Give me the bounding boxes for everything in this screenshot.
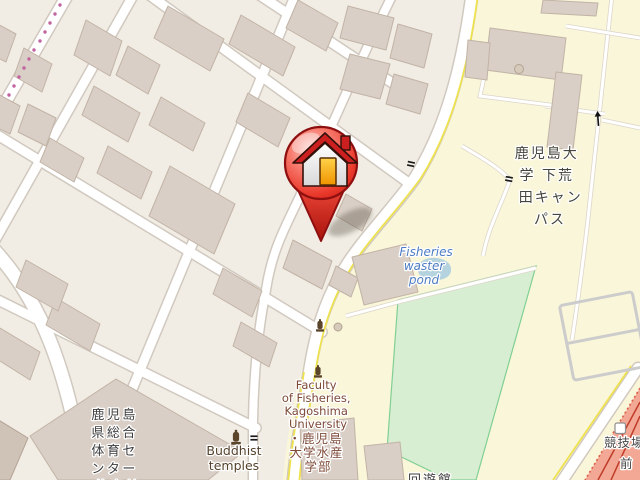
- label-gymnasium: 鹿児島 県総合 体育セ ンター 体育館: [91, 407, 144, 480]
- label-buddhist-temples: Buddhist temples: [206, 443, 265, 473]
- map-canvas[interactable]: 鹿児島大 学 下荒 田キャン パス 鹿児島 県総合 体育セ ンター 体育館 Fa…: [0, 0, 640, 480]
- tree-icon: [515, 65, 524, 74]
- label-partial-bottom: 回遊館: [408, 473, 453, 480]
- tree-icon: [334, 323, 342, 331]
- map-screenshot: 鹿児島大 学 下荒 田キャン パス 鹿児島 県総合 体育セ ンター 体育館 Fa…: [0, 0, 640, 480]
- tram-stop-icon: [615, 423, 626, 434]
